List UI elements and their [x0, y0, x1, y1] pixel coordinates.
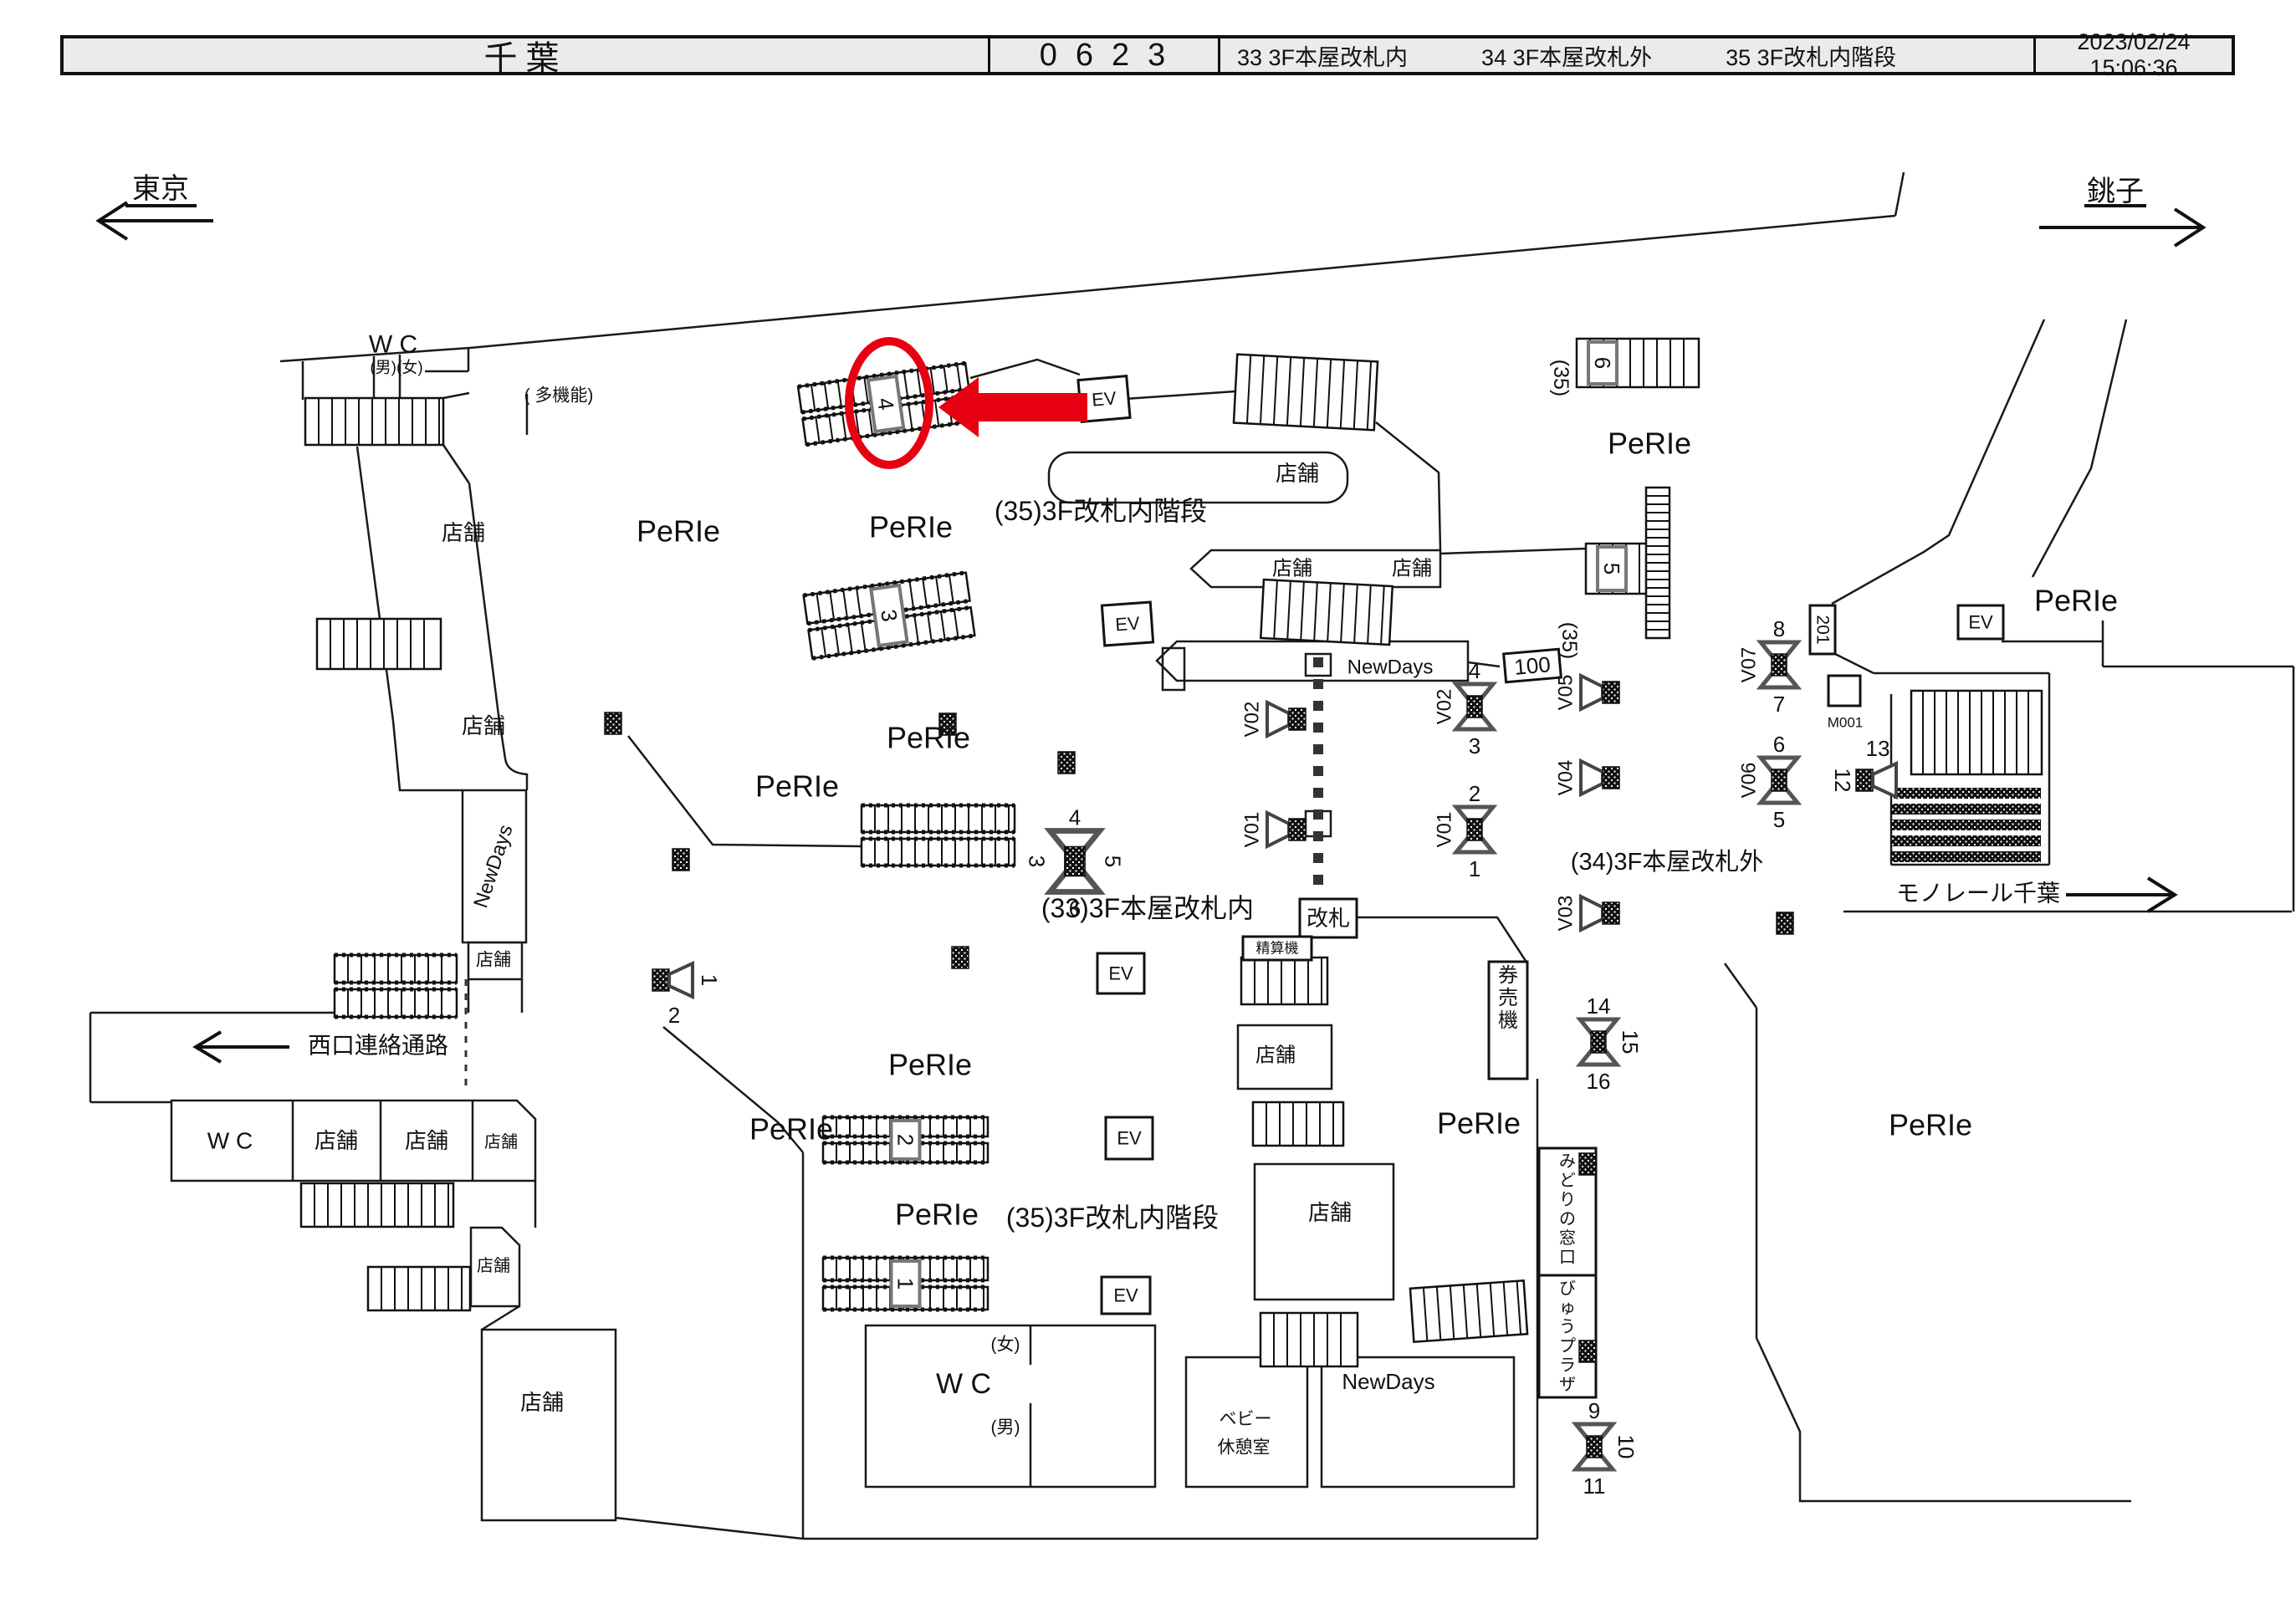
perie-10: PeRIe: [1437, 1106, 1521, 1141]
stair-nw-1: [305, 398, 443, 445]
signage-dot-icon: [1579, 1153, 1596, 1175]
perie-3: PeRIe: [887, 721, 970, 755]
sign-141516-num-top: 14: [1587, 993, 1611, 1019]
sign-12-num-right: 1: [697, 974, 722, 986]
stair-c-3: [1241, 958, 1327, 1004]
ev-4: EV: [1106, 1117, 1153, 1159]
esc-3: 3: [804, 573, 975, 659]
sign-v03-label: V03: [1555, 896, 1578, 932]
tenpo-2: 店舗: [462, 713, 505, 738]
view-plaza: びゅうプラザ: [1539, 1275, 1596, 1397]
tenpo-7: 店舗: [477, 1256, 510, 1275]
sign-v01-east-num-top: 2: [1469, 781, 1480, 806]
seisanki: 精算機: [1243, 937, 1312, 960]
sign-v02-west-label: V02: [1241, 702, 1264, 738]
stair-sw-2: [368, 1267, 470, 1310]
newdays-south: NewDays: [1342, 1369, 1434, 1394]
box-100: 100: [1504, 649, 1562, 682]
tenpo-8: 店舗: [520, 1390, 564, 1415]
ev-3: EV: [1097, 953, 1144, 993]
stair-sw-1: [301, 1183, 453, 1227]
stair-5-number: 5: [1599, 563, 1624, 575]
perie-4: PeRIe: [755, 769, 839, 804]
box-m001: [1828, 676, 1860, 706]
sign-141516-num-right: 15: [1618, 1030, 1643, 1055]
kaisatsu-label: 改札: [1307, 906, 1350, 931]
sign-91011-icon: 91110: [1576, 1398, 1639, 1499]
esc-1: 1: [823, 1258, 988, 1310]
ev-5: EV: [1102, 1277, 1150, 1314]
signage-dot-icon: [1777, 912, 1793, 934]
ladder-35: [1646, 488, 1670, 638]
ev-5-label: EV: [1113, 1285, 1138, 1306]
esc-west: [335, 955, 457, 1017]
stair-monorail: [1911, 691, 2042, 774]
sign-v02-east-num-top: 4: [1469, 658, 1480, 683]
area-35-stairs-top: (35)3F改札内階段: [995, 496, 1207, 526]
stair-nw-2: [317, 619, 441, 669]
tag-35-a: (35): [1549, 360, 1572, 396]
west-corridor-arrow: [196, 1032, 289, 1062]
stair-c-2: [1260, 580, 1392, 645]
ev-6-label: EV: [1968, 612, 1993, 633]
ev-3-label: EV: [1108, 963, 1133, 984]
signage-dot-icon: [1579, 1341, 1596, 1362]
wc-row: W C: [207, 1128, 253, 1154]
area-33-inside: (33)3F本屋改札内: [1041, 893, 1254, 923]
esc-2: 2: [823, 1117, 988, 1162]
sign-v04-label: V04: [1555, 760, 1578, 796]
sign-v01-east-num-bottom: 1: [1469, 856, 1480, 881]
sign-v07-num-top: 8: [1773, 616, 1785, 641]
sign-v03-icon: V03: [1555, 896, 1620, 932]
perie-11: PeRIe: [1889, 1108, 1972, 1142]
area-35-stairs-bottom: (35)3F改札内階段: [1006, 1203, 1219, 1233]
seisanki-label: 精算機: [1256, 941, 1299, 957]
kaisatsu: 改札: [1300, 899, 1357, 937]
ev-4-label: EV: [1117, 1128, 1142, 1149]
stair-c-4: [1253, 1102, 1343, 1146]
wc-room-m: (男): [991, 1418, 1020, 1438]
box-201: 201: [1810, 605, 1835, 654]
sign-v02-east-num-bottom: 3: [1469, 733, 1480, 758]
tenpo-9: 店舗: [1276, 461, 1319, 486]
newdays-left: NewDays: [469, 822, 517, 911]
dir-choshi: 銚子: [2087, 176, 2144, 207]
sign-91011-num-top: 9: [1588, 1398, 1600, 1423]
perie-1: PeRIe: [637, 514, 720, 549]
sign-v07-icon: 87V07: [1738, 616, 1798, 717]
ev-1-label: EV: [1091, 387, 1117, 410]
sign-141516-icon: 141615: [1580, 993, 1643, 1094]
sign-v06-num-bottom: 5: [1773, 807, 1785, 832]
kenbaiki-label: 券売機: [1498, 964, 1518, 1032]
wc-top-takinou: ( 多機能): [524, 386, 594, 406]
signage-dot-icon: [1058, 752, 1075, 774]
esc-2-number: 2: [893, 1134, 918, 1146]
dir-tokyo: 東京: [132, 173, 189, 205]
newdays-center: NewDays: [1347, 656, 1434, 679]
sign-v06-icon: 65V06: [1738, 732, 1798, 832]
stair-c-6: [1260, 1313, 1358, 1366]
perie-2: PeRIe: [869, 510, 953, 544]
sign-v07-label: V07: [1738, 647, 1761, 683]
tenpo-5: 店舗: [405, 1128, 448, 1153]
sign-v06-label: V06: [1738, 763, 1761, 799]
sign-141516-num-bottom: 16: [1587, 1069, 1611, 1094]
ev-2-label: EV: [1114, 612, 1140, 635]
monorail-arrow: [2066, 878, 2175, 912]
tenpo-6: 店舗: [484, 1132, 518, 1152]
sign-v01-east-icon: 21V01: [1434, 781, 1494, 881]
tenpo-11: 店舗: [1392, 558, 1432, 580]
sign-v05-label: V05: [1555, 675, 1578, 711]
sign-v01-west-label: V01: [1241, 812, 1264, 848]
wc-top-mf: (男)(女): [370, 359, 422, 377]
signage-dot-icon: [672, 849, 689, 871]
sign-cluster-3456-num-right: 5: [1101, 855, 1126, 867]
area-34-outside: (34)3F本屋改札外: [1571, 848, 1763, 876]
tenpo-big-outline: [482, 1330, 616, 1520]
tenpo-12: 店舗: [1255, 1044, 1296, 1067]
perie-5: PeRIe: [1608, 426, 1691, 461]
sign-v02-east-label: V02: [1434, 689, 1456, 725]
sign-v05-icon: V05: [1555, 675, 1620, 711]
midori-no-madoguchi-label: みどりの窓口: [1559, 1152, 1576, 1267]
wc-room: W C: [936, 1368, 991, 1400]
sign-91011-num-right: 10: [1613, 1435, 1639, 1459]
perie-7: PeRIe: [888, 1048, 972, 1082]
tenpo-13: 店舗: [1308, 1200, 1352, 1225]
hatched-stair-rows: [1891, 788, 2041, 862]
sign-v04-icon: V04: [1555, 760, 1620, 796]
tag-35-b: (35): [1557, 622, 1581, 659]
box-100-label: 100: [1513, 651, 1552, 680]
kenbaiki: 券売機: [1489, 962, 1527, 1079]
sign-v01-east-label: V01: [1434, 812, 1456, 848]
tenpo-3: 店舗: [476, 951, 511, 970]
sign-cluster-3456-num-top: 4: [1069, 805, 1081, 830]
stair-c-1: [1234, 355, 1378, 431]
tenpo-1: 店舗: [442, 520, 485, 545]
sign-1213-num-left: 12: [1830, 769, 1855, 793]
sign-v02-east-icon: 43V02: [1434, 658, 1494, 758]
station-map-page: 千葉 0623 33 3F本屋改札内 34 3F本屋改札外 35 3F改札内階段…: [0, 0, 2296, 1624]
signage-dot-icon: [605, 712, 621, 734]
wc-room-f: (女): [991, 1335, 1020, 1355]
sign-1213-icon: 1312: [1830, 736, 1896, 797]
floor-plan: 432165 EVEVEVEVEVEV改札精算機100201券売機みどりの窓口び…: [0, 0, 2296, 1624]
sign-cluster-3456-num-left: 3: [1024, 855, 1049, 867]
tokyo-arrow: [99, 202, 213, 239]
sign-v06-num-top: 6: [1773, 732, 1785, 757]
baby-2: 休憩室: [1218, 1438, 1271, 1458]
esc-center: [862, 805, 1015, 866]
sign-v01-west-icon: V01: [1241, 812, 1307, 848]
stair-c-5: [1410, 1280, 1527, 1341]
signage-dot-icon: [952, 947, 969, 968]
tenpo-4: 店舗: [314, 1128, 358, 1153]
dir-west-corridor: 西口連絡通路: [308, 1033, 448, 1059]
box-201-label: 201: [1813, 615, 1833, 644]
m001-label: M001: [1828, 715, 1864, 731]
sign-12-icon: 21: [652, 963, 722, 1028]
ev-2: EV: [1102, 602, 1153, 646]
wc-top: W C: [369, 331, 417, 359]
ev-6: EV: [1958, 605, 2003, 639]
sign-1213-num-top: 13: [1866, 736, 1890, 761]
perie-6: PeRIe: [2034, 584, 2118, 618]
tenpo-10: 店舗: [1272, 558, 1312, 580]
stair-6-number: 6: [1590, 357, 1615, 369]
baby-1: ベビー: [1220, 1410, 1272, 1429]
choshi-arrow: [2039, 209, 2203, 246]
sign-v02-west-icon: V02: [1241, 702, 1307, 738]
stair-6: 6: [1577, 339, 1699, 387]
stair-5: 5: [1586, 544, 1653, 594]
esc-1-number: 1: [893, 1278, 918, 1289]
sign-v07-num-bottom: 7: [1773, 692, 1785, 717]
dir-monorail: モノレール千葉: [1896, 881, 2060, 906]
sign-12-num-bottom: 2: [668, 1003, 680, 1028]
perie-8: PeRIe: [895, 1198, 979, 1232]
perie-9: PeRIe: [749, 1112, 833, 1147]
sign-91011-num-bottom: 11: [1583, 1473, 1606, 1499]
